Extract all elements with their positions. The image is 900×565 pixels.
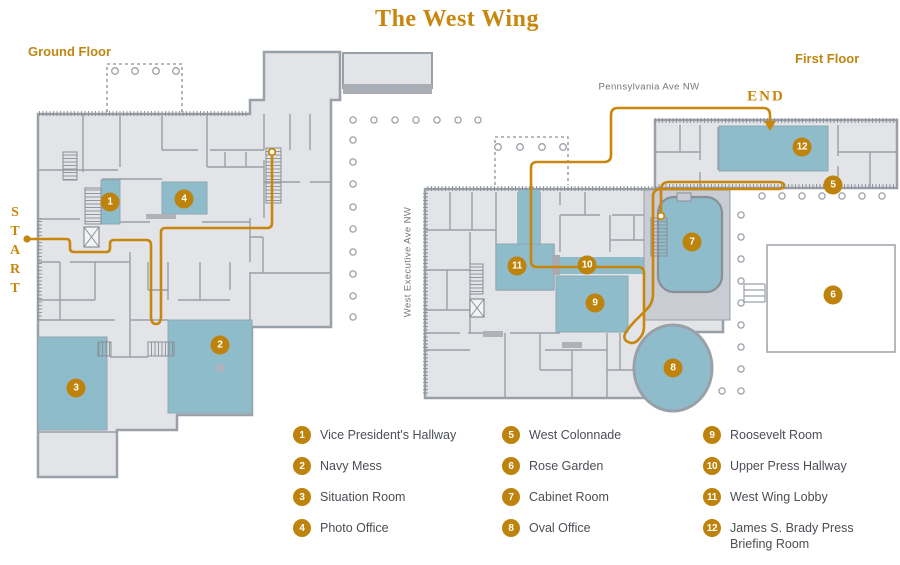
door-threshold — [562, 342, 582, 348]
room-vice-presidents-hallway — [101, 180, 120, 224]
column-dot — [350, 137, 356, 143]
column-dot — [350, 117, 356, 123]
wall-hatch — [655, 118, 897, 123]
staircase-icon — [470, 264, 483, 294]
route-stair-node-ground — [269, 149, 276, 156]
west-executive-ave-label: West Executive Ave NW — [403, 207, 414, 317]
room-oval-office — [634, 325, 712, 411]
column-dot — [738, 300, 744, 306]
legend-marker-7: 7 — [502, 488, 520, 506]
column-dot — [413, 117, 419, 123]
staircase-icon — [98, 342, 111, 356]
route-start-label: S T A R T — [10, 203, 20, 298]
column-dot — [799, 193, 805, 199]
staircase-icon — [266, 148, 281, 203]
column-dot — [173, 68, 180, 75]
staircase-icon — [63, 152, 77, 180]
legend-item-3: 3Situation Room — [293, 488, 498, 506]
column-dot — [517, 144, 524, 151]
door-threshold — [146, 214, 176, 219]
column-dot — [112, 68, 119, 75]
column-dot — [350, 314, 356, 320]
first-floor-plan — [423, 118, 897, 411]
column-dot — [560, 144, 567, 151]
legend-marker-2: 2 — [293, 457, 311, 475]
room-roosevelt — [556, 276, 628, 332]
legend-label: Oval Office — [529, 519, 591, 537]
room-photo-office — [162, 182, 207, 214]
rose-garden-outline — [767, 245, 895, 352]
column-dot — [879, 193, 885, 199]
room-detail — [216, 364, 224, 372]
door-threshold — [483, 331, 503, 337]
room-cabinet — [658, 197, 722, 292]
legend-item-5: 5West Colonnade — [502, 426, 687, 444]
legend-label: Roosevelt Room — [730, 426, 822, 444]
room-lobby-entrance — [518, 190, 540, 246]
column-dot — [350, 293, 356, 299]
cabinet-room-notch — [677, 193, 691, 201]
legend-item-9: 9Roosevelt Room — [703, 426, 888, 444]
column-dot — [719, 388, 725, 394]
legend-column-0: 1Vice President's Hallway2Navy Mess3Situ… — [293, 426, 498, 550]
legend-item-8: 8Oval Office — [502, 519, 687, 537]
column-dot — [738, 344, 744, 350]
column-dot — [350, 181, 356, 187]
wall-chunk — [552, 255, 560, 275]
column-dot — [350, 204, 356, 210]
column-dot — [153, 68, 160, 75]
column-dot — [539, 144, 546, 151]
column-dot — [132, 68, 139, 75]
legend-item-4: 4Photo Office — [293, 519, 498, 537]
column-dot — [455, 117, 461, 123]
legend-item-12: 12James S. Brady Press Briefing Room — [703, 519, 888, 552]
column-dot — [738, 388, 744, 394]
column-dot — [434, 117, 440, 123]
legend-marker-10: 10 — [703, 457, 721, 475]
column-dot — [738, 322, 744, 328]
legend-marker-6: 6 — [502, 457, 520, 475]
legend-marker-1: 1 — [293, 426, 311, 444]
legend-label: Rose Garden — [529, 457, 603, 475]
room-navy-mess — [168, 320, 252, 413]
column-dot — [738, 234, 744, 240]
column-dot — [779, 193, 785, 199]
legend-item-1: 1Vice President's Hallway — [293, 426, 498, 444]
legend-label: Situation Room — [320, 488, 405, 506]
column-dot — [839, 193, 845, 199]
column-dot — [392, 117, 398, 123]
legend-label: Upper Press Hallway — [730, 457, 847, 475]
staircase-icon — [85, 188, 101, 224]
west-wing-map: The West Wing Ground Floor First Floor P… — [0, 0, 900, 565]
legend-label: Vice President's Hallway — [320, 426, 456, 444]
legend-item-7: 7Cabinet Room — [502, 488, 687, 506]
column-dot — [738, 366, 744, 372]
residence-block-band — [343, 84, 432, 94]
column-dot — [738, 212, 744, 218]
column-dot — [738, 256, 744, 262]
legend-marker-8: 8 — [502, 519, 520, 537]
ground-floor-plan — [37, 52, 432, 477]
staircase-icon — [148, 342, 174, 356]
first-floor-label: First Floor — [795, 51, 859, 66]
legend-column-2: 9Roosevelt Room10Upper Press Hallway11We… — [703, 426, 888, 565]
column-dot — [350, 271, 356, 277]
legend-label: James S. Brady Press Briefing Room — [730, 519, 888, 552]
column-dot — [475, 117, 481, 123]
legend-marker-5: 5 — [502, 426, 520, 444]
column-dot — [738, 278, 744, 284]
residence-block — [343, 53, 432, 88]
legend-label: West Colonnade — [529, 426, 621, 444]
page-title: The West Wing — [375, 6, 539, 33]
legend-marker-9: 9 — [703, 426, 721, 444]
column-dot — [859, 193, 865, 199]
legend-label: Navy Mess — [320, 457, 382, 475]
ground-floor-label: Ground Floor — [28, 44, 111, 59]
room-situation-room — [38, 337, 107, 430]
pennsylvania-ave-label: Pennsylvania Ave NW — [599, 82, 700, 93]
route-stair-node-first — [658, 213, 665, 220]
column-dot — [495, 144, 502, 151]
elevator-icon — [470, 299, 484, 317]
route-start-dot — [23, 235, 30, 242]
legend-item-11: 11West Wing Lobby — [703, 488, 888, 506]
wall-hatch — [37, 218, 42, 322]
elevator-icon — [84, 227, 99, 247]
route-end-label: END — [747, 89, 785, 106]
legend-marker-4: 4 — [293, 519, 311, 537]
column-dot — [350, 226, 356, 232]
legend-marker-11: 11 — [703, 488, 721, 506]
legend-label: West Wing Lobby — [730, 488, 828, 506]
legend-item-2: 2Navy Mess — [293, 457, 498, 475]
room-upper-press-hallway — [556, 257, 648, 274]
column-dot — [350, 159, 356, 165]
wall-hatch — [38, 111, 248, 116]
legend-item-6: 6Rose Garden — [502, 457, 687, 475]
room-press-briefing — [719, 126, 828, 171]
legend-marker-3: 3 — [293, 488, 311, 506]
column-dot — [350, 249, 356, 255]
legend-item-10: 10Upper Press Hallway — [703, 457, 888, 475]
wall-hatch — [423, 192, 428, 396]
garden-steps-icon — [744, 284, 765, 302]
wall-hatch — [425, 186, 657, 191]
legend-label: Photo Office — [320, 519, 389, 537]
legend-label: Cabinet Room — [529, 488, 609, 506]
legend-marker-12: 12 — [703, 519, 721, 537]
column-dot — [759, 193, 765, 199]
column-dot — [371, 117, 377, 123]
legend-column-1: 5West Colonnade6Rose Garden7Cabinet Room… — [502, 426, 687, 550]
column-dot — [819, 193, 825, 199]
